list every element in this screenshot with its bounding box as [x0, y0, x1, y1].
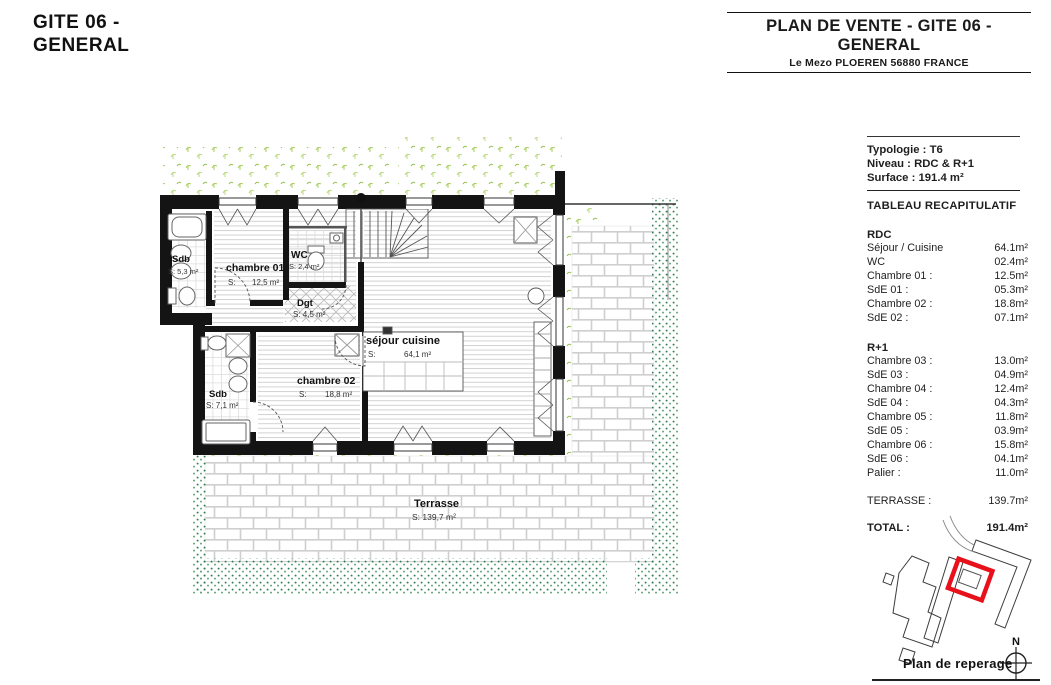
table-row: Chambre 03 :13.0m² — [867, 354, 1028, 368]
table-row: Chambre 02 :18.8m² — [867, 297, 1028, 311]
room-area-wc: S: 2,4 m² — [289, 262, 320, 271]
niveau-line: Niveau : RDC & R+1 — [867, 157, 1020, 171]
sheet-title-line1: PLAN DE VENTE - GITE 06 - — [727, 17, 1031, 36]
room-area-dgt: S: 4,5 m² — [293, 310, 326, 319]
compass-north-label: N — [1012, 636, 1020, 648]
table-row: Palier :11.0m² — [867, 466, 1028, 480]
room-area-sdb1: S: 5,3 m² — [168, 267, 199, 276]
room-area-chambre02: 18,8 m² — [325, 390, 352, 399]
table-row: Séjour / Cuisine64.1m² — [867, 241, 1028, 255]
table-row: Chambre 01 :12.5m² — [867, 269, 1028, 283]
room-label-wc: WC — [291, 250, 308, 261]
table-row: WC02.4m² — [867, 255, 1028, 269]
unit-highlight — [948, 559, 992, 600]
room-s-chambre02: S: — [299, 390, 307, 399]
section-r1: R+1 — [867, 342, 1028, 354]
room-label-terrasse: Terrasse — [414, 498, 459, 510]
room-area-chambre01: 12,5 m² — [252, 278, 279, 287]
terrasse-row: TERRASSE :139.7m² — [867, 494, 1028, 508]
table-row: Chambre 04 :12.4m² — [867, 382, 1028, 396]
typologie-line: Typologie : T6 — [867, 143, 1020, 157]
room-area-sdb2: S: 7,1 m² — [206, 401, 239, 410]
table-row: SdE 06 :04.1m² — [867, 452, 1028, 466]
table-row: Chambre 06 :15.8m² — [867, 438, 1028, 452]
room-label-sdb1: Sdb — [172, 254, 190, 265]
sheet-title-line2: GENERAL — [727, 36, 1031, 55]
table-row: SdE 04 :04.3m² — [867, 396, 1028, 410]
table-row: SdE 03 :04.9m² — [867, 368, 1028, 382]
room-s-sejour: S: — [368, 350, 376, 359]
unit-id-block: Typologie : T6 Niveau : RDC & R+1 Surfac… — [867, 136, 1020, 191]
sheet: GITE 06 - GENERAL — [0, 0, 1051, 685]
room-label-sdb2: Sdb — [209, 389, 227, 400]
room-label-chambre01: chambre 01 — [226, 262, 285, 274]
table-row: SdE 02 :07.1m² — [867, 311, 1028, 325]
table-title: TABLEAU RECAPITULATIF — [867, 200, 1028, 212]
floor-plan: Sdb S: 5,3 m² chambre 01 S: 12,5 m² WC S… — [0, 0, 700, 685]
table-row: SdE 01 :05.3m² — [867, 283, 1028, 297]
section-rdc: RDC — [867, 229, 1028, 241]
room-label-dgt: Dgt — [297, 298, 314, 309]
reperage-label: Plan de reperage — [903, 656, 1013, 671]
room-label-sejour: séjour cuisine — [366, 335, 440, 347]
table-row: SdE 05 :03.9m² — [867, 424, 1028, 438]
bottom-rule — [872, 679, 1040, 681]
sheet-subtitle: Le Mezo PLOEREN 56880 FRANCE — [727, 57, 1031, 69]
room-area-terrasse: S: 139,7 m² — [412, 512, 456, 522]
table-row: Chambre 05 :11.8m² — [867, 410, 1028, 424]
room-label-chambre02: chambre 02 — [297, 375, 356, 387]
surface-line: Surface : 191.4 m² — [867, 171, 1020, 185]
room-s-chambre01: S: — [228, 278, 236, 287]
sheet-header: PLAN DE VENTE - GITE 06 - GENERAL Le Mez… — [727, 12, 1031, 73]
summary-panel: Typologie : T6 Niveau : RDC & R+1 Surfac… — [867, 136, 1028, 535]
entrance-marker — [356, 193, 366, 203]
room-area-sejour: 64,1 m² — [404, 350, 431, 359]
